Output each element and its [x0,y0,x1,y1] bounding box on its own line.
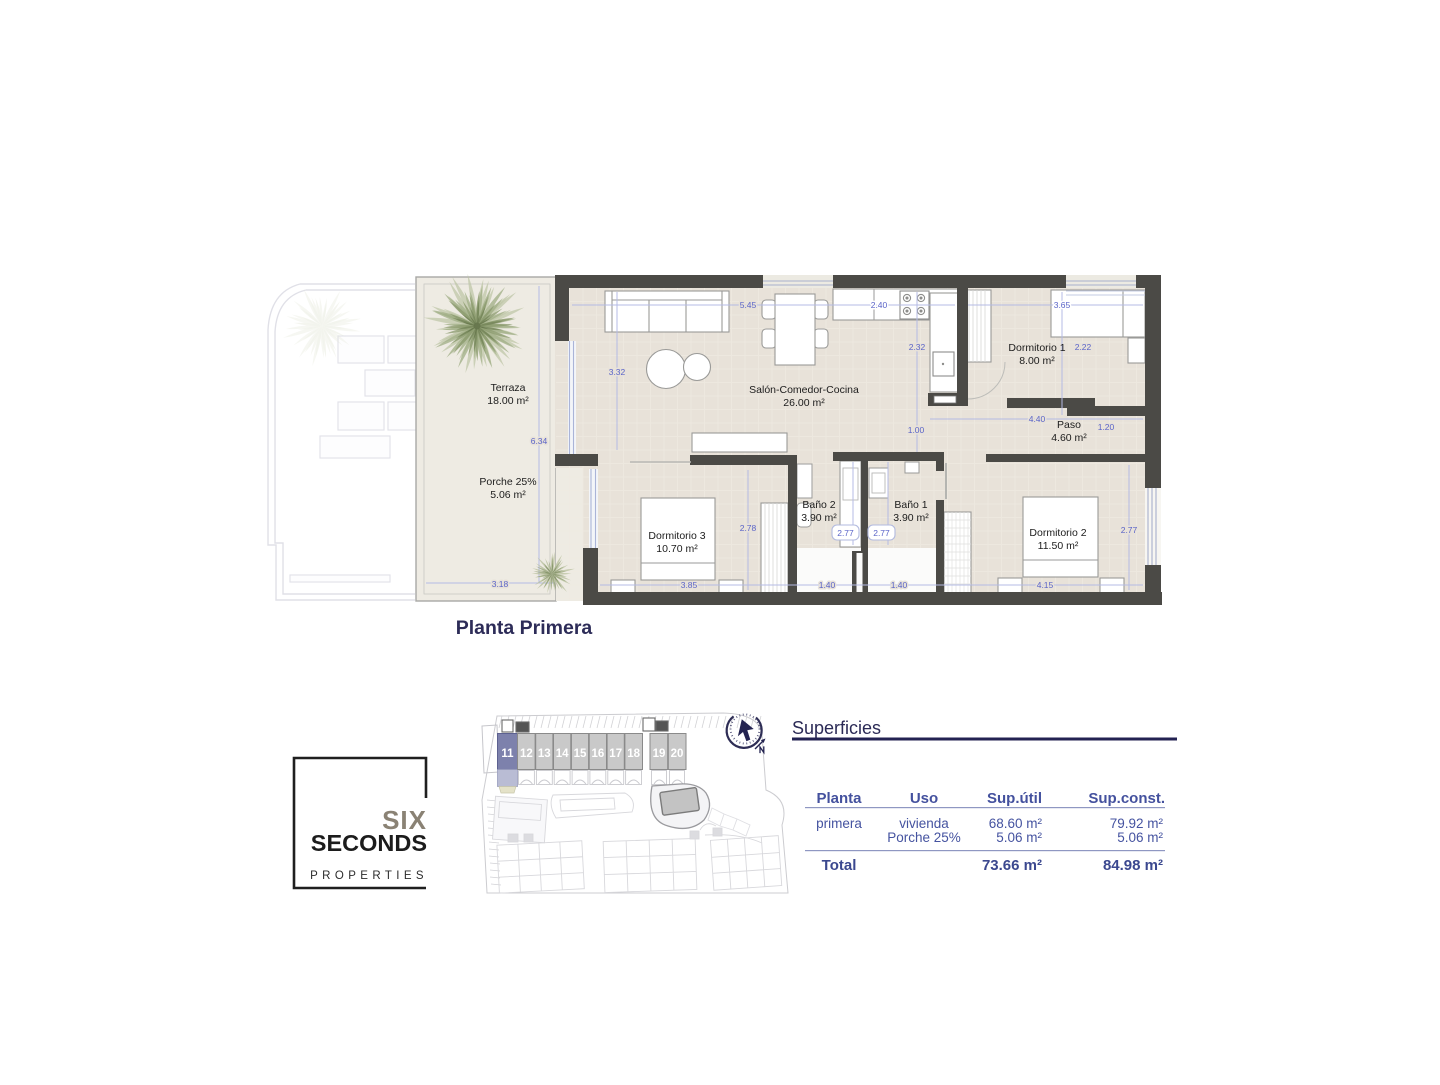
svg-text:Baño 1: Baño 1 [894,499,927,511]
svg-text:vivienda: vivienda [899,816,949,831]
svg-text:1.40: 1.40 [891,580,908,590]
svg-text:Dormitorio 1: Dormitorio 1 [1008,342,1065,354]
svg-text:Paso: Paso [1057,419,1081,431]
svg-text:1.00: 1.00 [908,425,925,435]
svg-text:13: 13 [538,748,551,760]
svg-text:11: 11 [501,748,514,760]
svg-text:2.77: 2.77 [873,528,890,538]
svg-text:primera: primera [816,816,862,831]
svg-text:2.77: 2.77 [1121,525,1138,535]
svg-text:Superficies: Superficies [792,718,881,738]
svg-text:SECONDS: SECONDS [311,830,427,856]
svg-text:3.90 m²: 3.90 m² [801,512,837,524]
svg-text:73.66 m²: 73.66 m² [982,857,1042,874]
svg-text:3.65: 3.65 [1054,300,1071,310]
svg-text:4.40: 4.40 [1029,414,1046,424]
svg-text:17: 17 [609,748,622,760]
svg-text:Baño 2: Baño 2 [802,499,835,511]
svg-text:79.92 m²: 79.92 m² [1110,816,1164,831]
svg-text:Dormitorio 2: Dormitorio 2 [1029,527,1086,539]
svg-text:Sup.útil: Sup.útil [987,790,1042,807]
svg-text:2.22: 2.22 [1075,342,1092,352]
svg-text:11.50 m²: 11.50 m² [1038,540,1079,552]
svg-text:Porche 25%: Porche 25% [887,830,961,845]
svg-text:84.98 m²: 84.98 m² [1103,857,1163,874]
svg-text:PROPERTIES: PROPERTIES [310,870,428,882]
svg-text:Planta: Planta [816,790,862,807]
svg-text:2.77: 2.77 [837,528,854,538]
svg-text:Dormitorio 3: Dormitorio 3 [648,530,705,542]
svg-text:Porche 25%: Porche 25% [479,476,536,488]
svg-text:4.60 m²: 4.60 m² [1051,432,1087,444]
svg-text:16: 16 [592,748,605,760]
svg-text:Sup.const.: Sup.const. [1088,790,1165,807]
svg-text:4.15: 4.15 [1037,580,1054,590]
svg-text:5.06 m²: 5.06 m² [1117,830,1163,845]
svg-text:Terraza: Terraza [490,382,525,394]
svg-text:1.20: 1.20 [1098,422,1115,432]
svg-text:Planta Primera: Planta Primera [456,617,593,639]
svg-text:18: 18 [627,748,640,760]
svg-text:8.00 m²: 8.00 m² [1019,355,1055,367]
svg-text:2.32: 2.32 [909,342,926,352]
svg-text:Salón-Comedor-Cocina: Salón-Comedor-Cocina [749,384,859,396]
svg-text:5.45: 5.45 [740,300,757,310]
svg-text:2.78: 2.78 [740,523,757,533]
svg-text:15: 15 [574,748,587,760]
svg-text:12: 12 [520,748,533,760]
svg-text:19: 19 [653,748,666,760]
svg-text:6.34: 6.34 [531,436,548,446]
svg-text:10.70 m²: 10.70 m² [656,543,698,555]
svg-text:20: 20 [671,748,684,760]
svg-text:Total: Total [822,857,857,874]
svg-text:1.40: 1.40 [819,580,836,590]
svg-text:5.06 m²: 5.06 m² [996,830,1042,845]
svg-text:14: 14 [556,748,569,760]
svg-text:Uso: Uso [910,790,938,807]
svg-text:18.00 m²: 18.00 m² [487,395,529,407]
svg-text:2.40: 2.40 [871,300,888,310]
svg-text:3.32: 3.32 [609,367,626,377]
svg-text:26.00 m²: 26.00 m² [783,397,825,409]
svg-text:3.18: 3.18 [492,579,509,589]
svg-text:3.90 m²: 3.90 m² [893,512,929,524]
svg-text:3.85: 3.85 [681,580,698,590]
svg-text:5.06 m²: 5.06 m² [490,489,526,501]
svg-text:68.60 m²: 68.60 m² [989,816,1043,831]
